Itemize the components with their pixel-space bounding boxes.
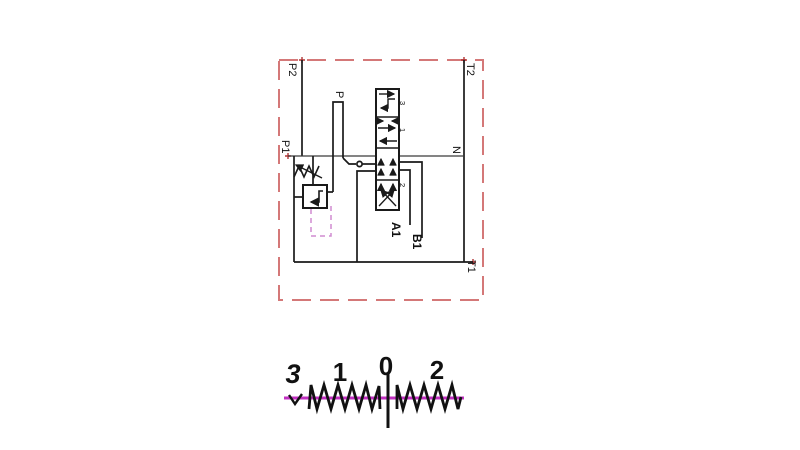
position-number-0: 0 <box>379 351 393 381</box>
p-gallery <box>333 102 343 192</box>
port-label-b1: B1 <box>410 234 424 250</box>
p-connector <box>343 158 356 164</box>
spool-section-label-2: 2 <box>398 183 407 187</box>
relief-valve-symbol <box>294 165 327 208</box>
spool-section-label-3: 3 <box>398 101 407 105</box>
port-label-p2: P2 <box>286 63 298 76</box>
port-label-n: N <box>450 146 462 154</box>
spool-valve-symbol <box>376 89 399 210</box>
position-number-1: 1 <box>333 357 347 387</box>
port-label-p: P <box>333 91 345 98</box>
relief-valve-box <box>303 185 327 208</box>
port-label-a1: A1 <box>389 222 403 238</box>
a1-work-line <box>399 170 410 225</box>
spool-section-label-1: 1 <box>398 128 407 132</box>
hydraulic-schematic-page: P2 T2 P1 N T1 P A1 B1 3 1 2 3 1 0 2 <box>0 0 800 450</box>
schematic-canvas: P2 T2 P1 N T1 P A1 B1 3 1 2 3 1 0 2 <box>0 0 800 450</box>
spool-position-diagram: 3 1 0 2 <box>284 351 464 428</box>
port-label-t2: T2 <box>464 63 476 76</box>
position-number-2: 2 <box>430 355 444 385</box>
position-number-3: 3 <box>285 359 300 389</box>
valve-tank-line <box>357 171 376 262</box>
port-label-p1: P1 <box>279 140 291 153</box>
p-orifice-icon <box>357 161 362 166</box>
port-label-t1: T1 <box>465 260 477 273</box>
